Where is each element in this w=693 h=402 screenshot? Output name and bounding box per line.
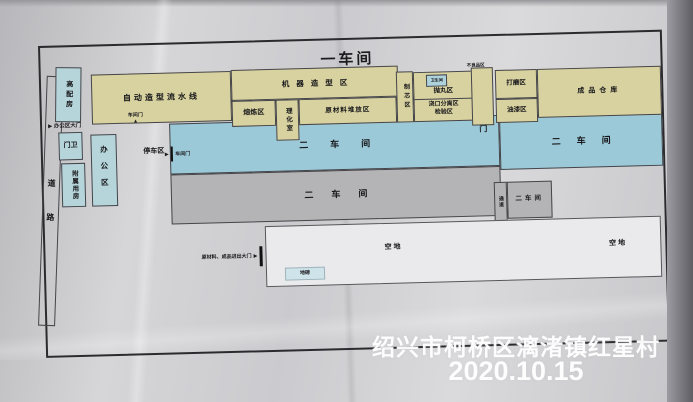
gate-arrow-icon: ▶ — [48, 124, 52, 130]
gate-arrow-icon: ▶ — [165, 151, 169, 157]
warehouse-label: 成品仓库 — [577, 87, 621, 97]
zone-corridor — [471, 67, 495, 126]
weighbridge-label: 地磅 — [300, 270, 310, 277]
zone-aux-rooms: 附属用房 — [61, 163, 86, 208]
photo-right-shadow — [667, 0, 693, 402]
office-label: 办公区 — [99, 145, 110, 195]
open-space-left-label: 空地 — [384, 244, 402, 253]
auto-molding-line-label: 自动造型流水线 — [123, 92, 200, 104]
office-gate-label: 办公区大门 — [54, 123, 82, 130]
shot-blasting-label: 抛丸区 — [414, 87, 472, 97]
zone-smelting: 熔炼区 — [232, 100, 277, 127]
zone-lab: 理化室 — [275, 99, 299, 141]
floor-plan-frame: 一车间 道 路 高配房 ▶ 办公区大门 门卫 附属用房 办公区 停车区 — [38, 30, 670, 358]
machine-molding-label: 机器造型区 — [275, 78, 355, 89]
workshop-door-side-label: 车间门 — [175, 150, 190, 157]
workshop2-gray-left-label: 二车间 — [286, 188, 385, 202]
passage-label: 通道 — [497, 195, 504, 207]
toilet-label: 卫生间 — [430, 78, 442, 83]
workshop2-blue-right-label: 二车间 — [536, 134, 627, 148]
guard-label: 门卫 — [64, 142, 78, 151]
lab-label: 理化室 — [283, 107, 292, 133]
gate-separation-block: 浇口分离区 检验区 — [415, 101, 473, 118]
aux-rooms-label: 附属用房 — [69, 170, 78, 200]
zone-guard: 门卫 — [58, 132, 83, 161]
workshop-door-side: ▶ 车间门 — [165, 146, 191, 162]
zone-auto-molding-line: 自动造型流水线 — [91, 71, 232, 125]
zone-shot-blasting-block: 卫生间 抛丸区 浇口分离区 检验区 — [413, 71, 474, 123]
defective-area-label: 不良品区 — [467, 62, 485, 68]
watermark-date: 2020.10.15 — [372, 356, 660, 387]
zone-weighbridge: 地磅 — [285, 267, 325, 281]
floor-plan-photo: 一车间 道 路 高配房 ▶ 办公区大门 门卫 附属用房 办公区 停车区 — [0, 0, 693, 402]
road-label-1: 道 — [47, 179, 55, 189]
smelting-label: 熔炼区 — [243, 109, 264, 118]
workshop2-gray-right-label: 二车间 — [515, 195, 544, 204]
open-space-right-label: 空地 — [609, 240, 627, 249]
inspection-label: 检验区 — [415, 108, 473, 117]
zone-office: 办公区 — [90, 134, 118, 207]
door-marker-icon: ▲ — [133, 118, 138, 124]
zone-grinding: 打磨区 — [495, 69, 538, 99]
material-gate-label: 原材料、成品进出大门 — [202, 253, 252, 261]
raw-material-label: 原材料堆放区 — [325, 106, 370, 115]
zone-workshop2-gray-right: 二车间 — [507, 181, 553, 219]
road-label-2: 路 — [46, 213, 54, 223]
material-gate-row: 原材料、成品进出大门 ▶ — [201, 246, 262, 268]
zone-workshop2-gray-left: 二车间 — [170, 166, 501, 225]
door-label: 门 — [479, 124, 487, 134]
zone-machine-molding: 机器造型区 — [231, 66, 399, 101]
zone-warehouse: 成品仓库 — [537, 66, 662, 118]
office-gate-row: ▶ 办公区大门 — [48, 120, 118, 130]
grinding-label: 打磨区 — [506, 80, 526, 89]
zone-toilet: 卫生间 — [426, 74, 447, 87]
gate-arrow-icon: ▶ — [254, 253, 258, 259]
zone-core-making: 制芯区 — [396, 71, 414, 122]
zone-raw-material: 原材料堆放区 — [298, 97, 397, 126]
zone-open-space: 空地 空地 地磅 — [265, 216, 662, 287]
zone-painting: 油漆区 — [496, 98, 539, 123]
zone-passage: 通道 — [494, 182, 508, 221]
core-making-label: 制芯区 — [401, 83, 409, 110]
plan-title: 一车间 — [292, 46, 403, 70]
workshop-door-top: 车间门 ▲ — [128, 111, 143, 124]
power-room-label: 高配房 — [64, 80, 73, 110]
painting-label: 油漆区 — [507, 106, 527, 115]
door-bar — [259, 246, 263, 266]
zone-power-room: 高配房 — [55, 67, 81, 122]
door-bar — [171, 146, 174, 161]
